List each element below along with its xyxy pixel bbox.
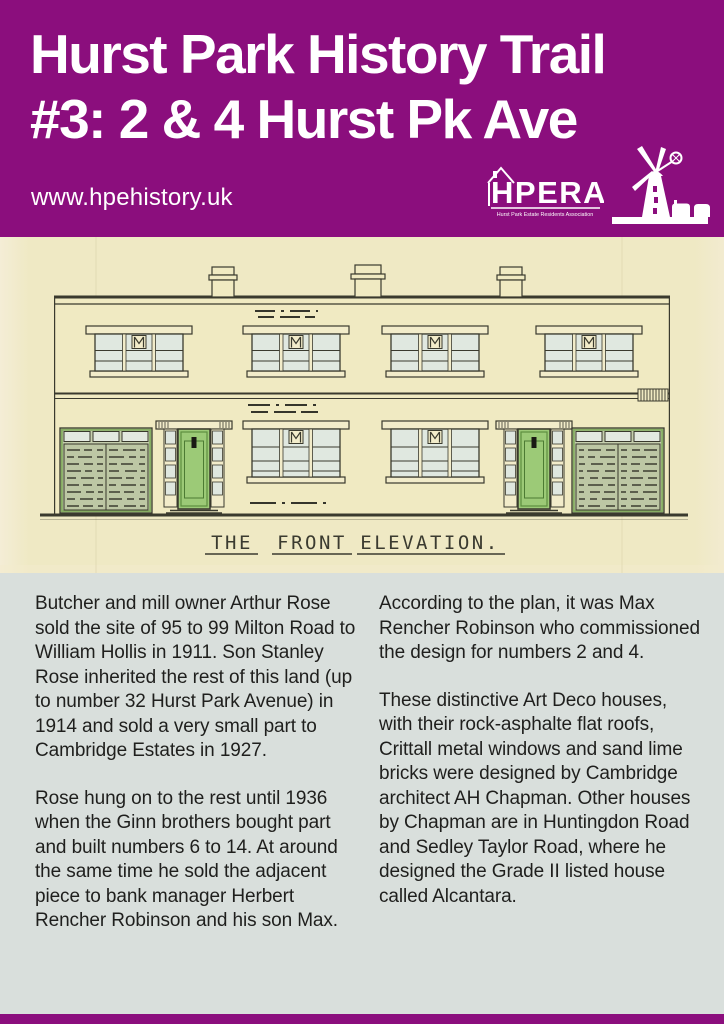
upper-window-2 [243,326,349,377]
windmill-logo [610,146,710,233]
front-door-left [156,421,232,513]
left-paragraph-1: Butcher and mill owner Arthur Rose sold … [35,592,359,764]
houses-icon [672,200,710,217]
garage-door-left [60,428,152,513]
left-column: Butcher and mill owner Arthur Rose sold … [35,592,359,957]
front-door-right [496,421,572,513]
hpera-logo-graphic: HPERA Hurst Park Estate Residents Associ… [486,158,604,224]
band-hatch-block [638,389,668,401]
hpera-acronym: HPERA [491,175,604,210]
footer-strip [0,1014,724,1024]
title-line-1: Hurst Park History Trail [30,22,605,87]
windmill-icon [610,146,710,228]
left-paragraph-2: Rose hung on to the rest until 1936 when… [35,787,359,934]
lower-window-1 [243,421,349,483]
elevation-drawing: THE FRONT ELEVATION. [0,237,724,573]
svg-text:FRONT: FRONT [277,532,347,554]
upper-window-3 [382,326,488,377]
garage-door-right [572,428,664,513]
title-line-2: #3: 2 & 4 Hurst Pk Ave [30,87,605,152]
right-paragraph-1: According to the plan, it was Max Renche… [379,592,703,666]
header-banner: Hurst Park History Trail #3: 2 & 4 Hurst… [0,0,724,237]
svg-text:THE: THE [211,532,253,554]
hpera-subtitle: Hurst Park Estate Residents Association [497,212,593,218]
website-url: www.hpehistory.uk [31,184,233,212]
svg-text:ELEVATION.: ELEVATION. [360,532,499,554]
poster-page: Hurst Park History Trail #3: 2 & 4 Hurst… [0,0,724,1024]
right-paragraph-2: These distinctive Art Deco houses, with … [379,689,703,910]
page-title: Hurst Park History Trail #3: 2 & 4 Hurst… [30,22,605,152]
article-section: Butcher and mill owner Arthur Rose sold … [0,573,724,1014]
right-column: According to the plan, it was Max Renche… [379,592,703,932]
upper-window-4 [536,326,642,377]
elevation-scan: THE FRONT ELEVATION. [0,237,724,573]
upper-window-1 [86,326,192,377]
hpera-logo: HPERA Hurst Park Estate Residents Associ… [486,158,604,229]
lower-window-2 [382,421,488,483]
ground-strip [612,217,708,224]
